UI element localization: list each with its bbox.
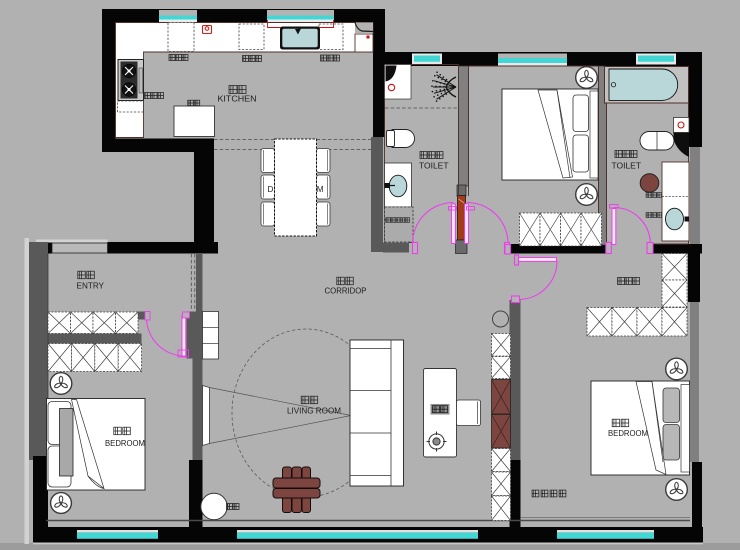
svg-text:ENTRY: ENTRY: [77, 281, 105, 291]
svg-text:TOILET: TOILET: [612, 162, 642, 171]
svg-text:CORRIDOP: CORRIDOP: [325, 287, 368, 296]
svg-text:LIVING ROOM: LIVING ROOM: [287, 407, 341, 416]
svg-text:BEDROOM: BEDROOM: [608, 428, 648, 438]
svg-text:BEDROOM: BEDROOM: [105, 438, 145, 448]
svg-text:TOILET: TOILET: [419, 162, 449, 171]
svg-text:KITCHEN: KITCHEN: [218, 94, 257, 104]
